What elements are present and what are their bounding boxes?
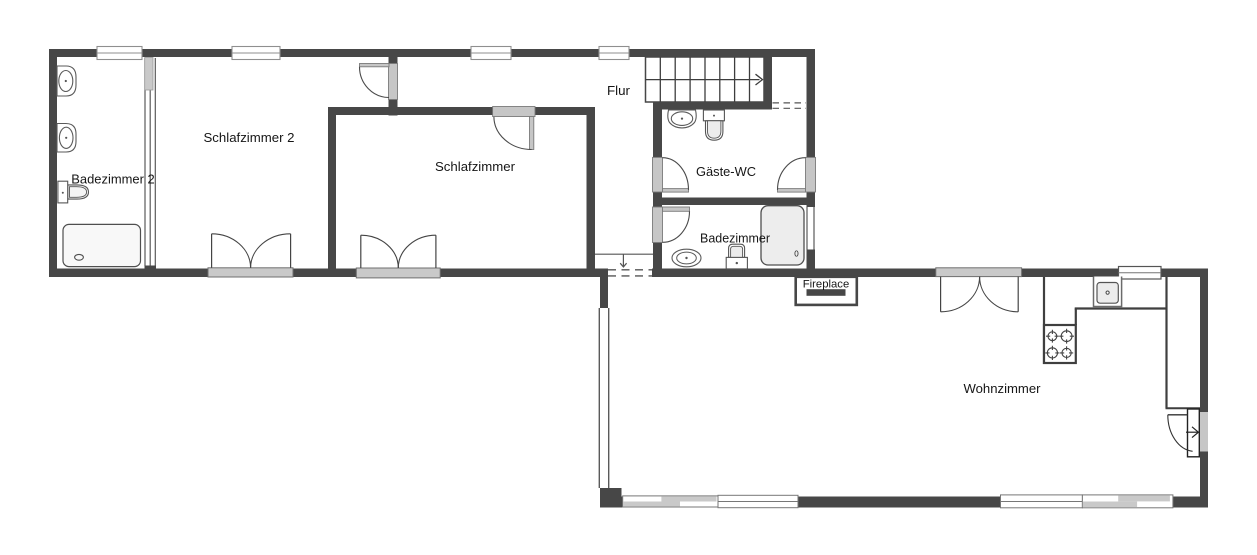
svg-text:Schlafzimmer: Schlafzimmer [435,159,516,174]
svg-text:Schlafzimmer 2: Schlafzimmer 2 [204,130,295,145]
svg-text:Flur: Flur [607,83,631,98]
svg-text:Fireplace: Fireplace [803,278,850,290]
svg-text:Badezimmer: Badezimmer [700,231,771,246]
svg-text:0: 0 [794,250,799,259]
svg-text:Badezimmer 2: Badezimmer 2 [71,172,155,187]
svg-text:Gäste-WC: Gäste-WC [696,164,756,179]
svg-text:Wohnzimmer: Wohnzimmer [964,381,1042,396]
